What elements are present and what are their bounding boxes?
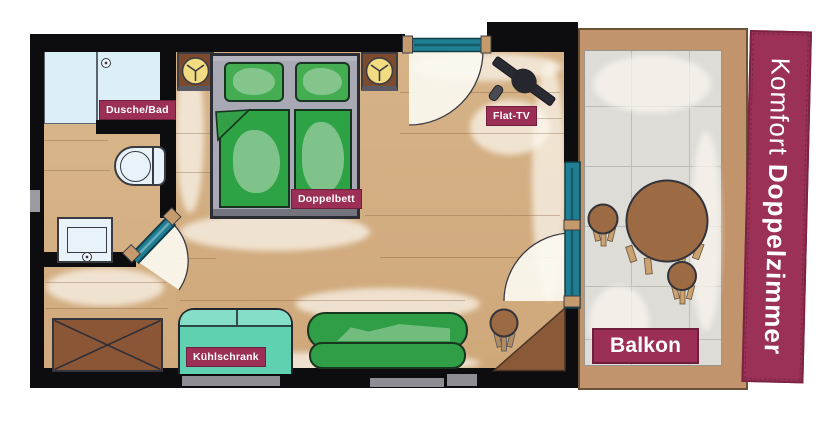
- balcony-floor: [584, 50, 722, 366]
- sofa-seat: [309, 342, 466, 369]
- floor-wash: [691, 131, 721, 331]
- banner-title-regular: Komfort: [763, 58, 796, 165]
- floor-plan: Dusche/Bad Doppelbett Flat-TV Kühlschran…: [0, 0, 825, 440]
- floor-plank-line: [400, 92, 560, 93]
- nightstand-right: [361, 52, 398, 91]
- bed-foot-shadow: [213, 209, 357, 216]
- floor-wash: [46, 268, 164, 306]
- pillow-left: [224, 62, 284, 102]
- label-shower-bath: Dusche/Bad: [99, 100, 176, 120]
- floor-plank-line: [46, 282, 166, 283]
- nightstand-left: [177, 52, 214, 91]
- shower-partition: [96, 51, 98, 123]
- title-banner: Komfort Doppelzimmer: [741, 30, 812, 383]
- banner-title-bold: Doppelzimmer: [759, 164, 794, 356]
- sink: [57, 217, 113, 263]
- floor-plank-line: [176, 258, 216, 259]
- pillow-shading: [233, 68, 276, 95]
- toilet: [114, 146, 166, 186]
- floor-plank-line: [180, 300, 465, 301]
- floor-wash: [593, 55, 711, 113]
- window-left: [30, 190, 40, 212]
- label-double-bed: Doppelbett: [291, 189, 362, 209]
- fridge-edge-line: [180, 325, 291, 327]
- pillow-right: [295, 62, 350, 102]
- sink-basin: [67, 227, 107, 253]
- sink-drain-icon: [82, 252, 92, 262]
- floor-plank-line: [380, 257, 565, 258]
- floor-plank-line: [365, 215, 560, 216]
- wardrobe: [52, 318, 163, 372]
- blanket-shading: [233, 130, 280, 193]
- floor-plank-line: [400, 133, 565, 134]
- window-bottom: [447, 374, 477, 386]
- toilet-tank-line: [152, 148, 154, 184]
- blanket-shading: [302, 122, 343, 192]
- floor-plank-line: [176, 133, 212, 134]
- window-bottom: [370, 378, 444, 387]
- floor-wash: [412, 53, 562, 81]
- floor-plank-line: [44, 140, 108, 141]
- floor-plank-line: [176, 172, 210, 173]
- label-fridge: Kühlschrank: [186, 347, 266, 367]
- wall-right-upper: [564, 22, 578, 163]
- floor-plank-line: [46, 308, 168, 309]
- label-flat-tv: Flat-TV: [486, 106, 537, 126]
- wall-shower: [96, 120, 164, 134]
- shower-drain-icon: [101, 58, 111, 68]
- fridge-divider: [236, 310, 238, 325]
- label-balcony: Balkon: [592, 328, 699, 364]
- floor-wash: [532, 62, 566, 300]
- sofa-shading: [337, 320, 450, 341]
- wall-right-lower: [564, 306, 578, 388]
- pillow-shading: [303, 68, 342, 95]
- banner-title: Komfort Doppelzimmer: [758, 58, 796, 356]
- window-bottom: [182, 376, 280, 386]
- toilet-bowl: [120, 151, 151, 182]
- floor-plank-line: [44, 170, 110, 171]
- wall-top: [30, 34, 405, 52]
